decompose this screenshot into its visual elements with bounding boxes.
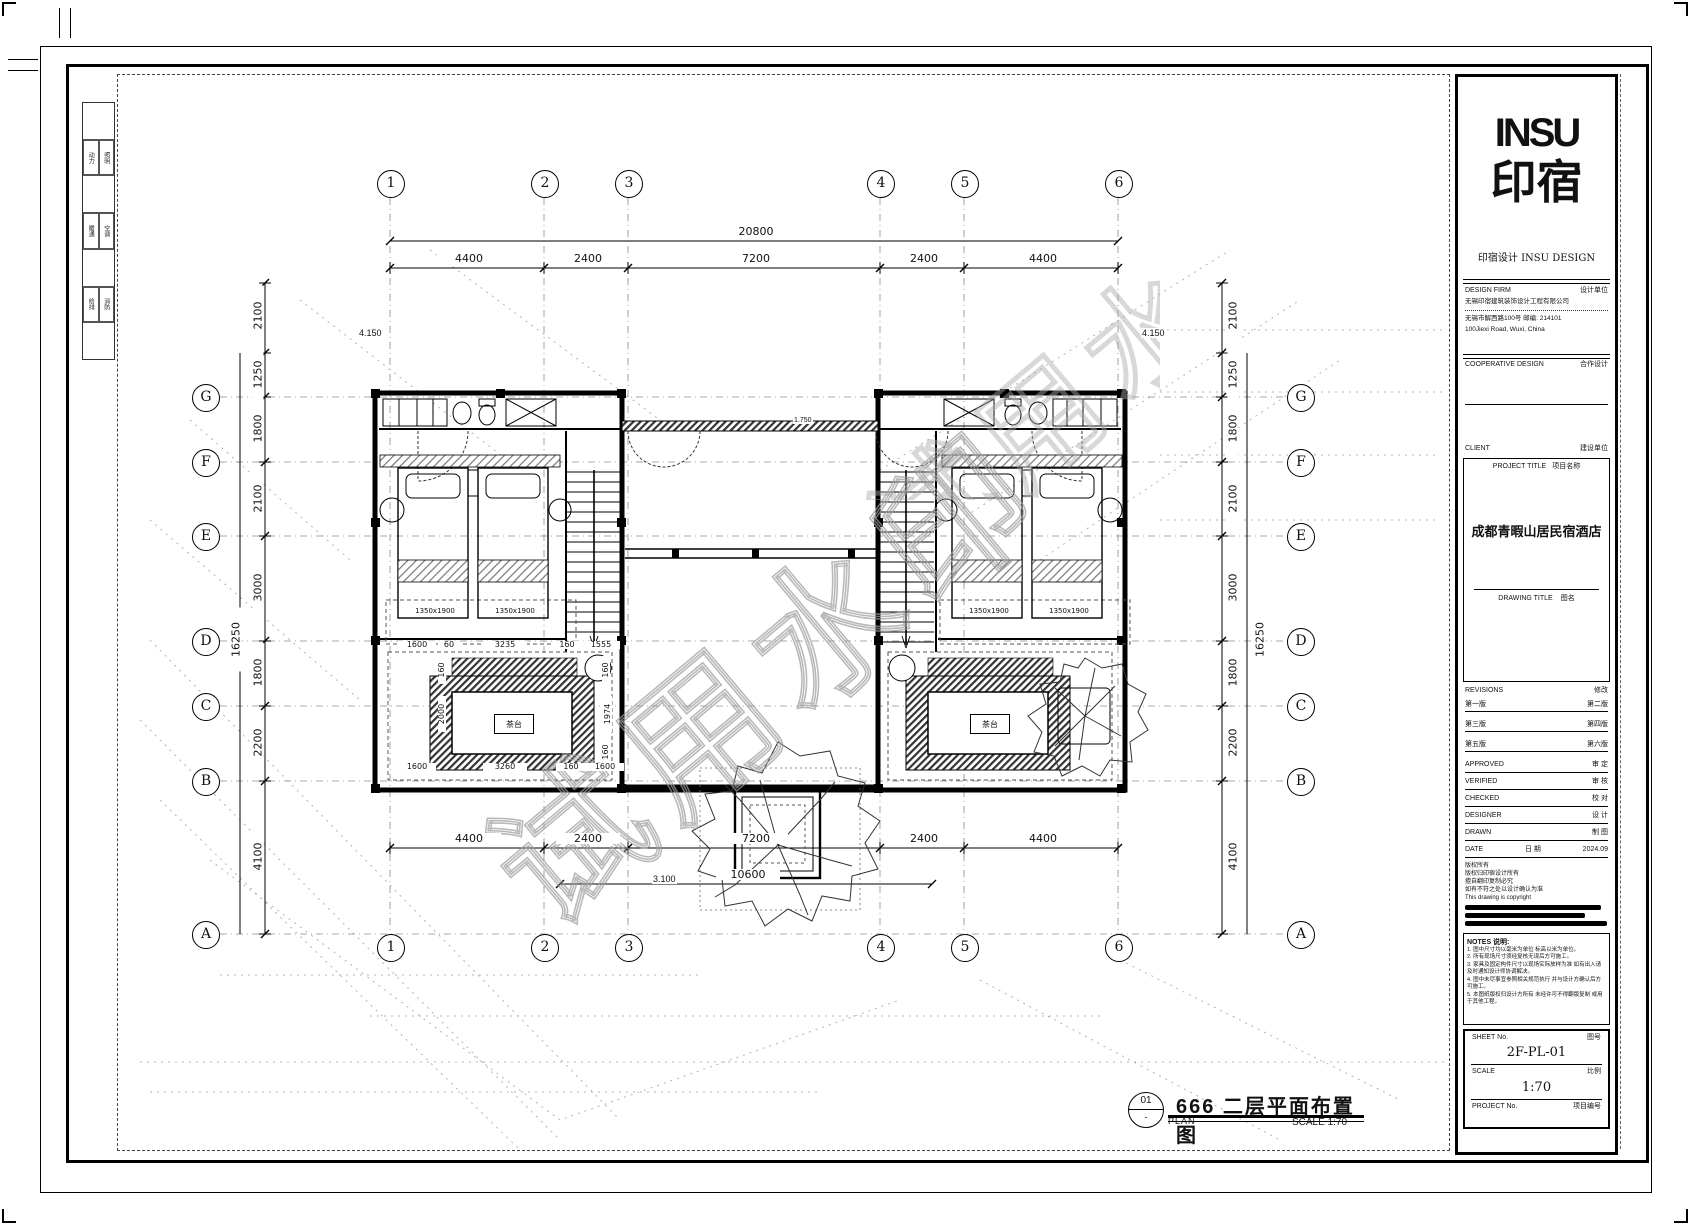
revision-line: 第一版 第二版 (1465, 701, 1608, 712)
bed-size-label: 1350x1900 (400, 608, 470, 615)
grid-bubble-row: E (1287, 523, 1315, 551)
divider (1463, 279, 1610, 284)
grid-bubble-col: 5 (951, 170, 979, 198)
level-marker: 1.750 (793, 417, 813, 424)
dim-label: 2100 (253, 286, 264, 346)
grid-bubble-row: B (1287, 768, 1315, 796)
sign-cn: 设 计 (1592, 812, 1608, 820)
dim-label: 1250 (253, 345, 264, 405)
watermark-fragment: 试用水印 (860, 240, 1160, 500)
dim-label: 2000 (438, 696, 446, 732)
rev-cell: 第六版 (1587, 741, 1608, 749)
grid-bubble-col: 1 (377, 934, 405, 962)
dim-label: 1800 (1228, 643, 1239, 703)
revisions-row: REVISIONS 修改 (1465, 687, 1608, 695)
drawing-title-cn: 图名 (1561, 595, 1575, 603)
copyright-line: 版权所有 (1465, 863, 1489, 870)
grid-bubble-row: D (1287, 628, 1315, 656)
dim-label: 7200 (724, 833, 788, 844)
sign-en: DRAWN (1465, 829, 1491, 837)
coop-row: COOPERATIVE DESIGN 合作设计 (1465, 361, 1608, 369)
grid-bubble-col: 4 (867, 934, 895, 962)
grid-bubble-row: A (1287, 921, 1315, 949)
sign-en: APPROVED (1465, 761, 1504, 769)
dim-label: 3235 (483, 641, 527, 649)
sign-cn: 审 定 (1592, 761, 1608, 769)
tea-table-label: 茶台 (494, 714, 534, 734)
title-block: INSU 印宿 印宿设计 INSU DESIGN DESIGN FIRM 设计单… (1455, 74, 1618, 1155)
notes-title: NOTES 说明: (1467, 937, 1606, 947)
copyright-line: 擅自翻印复制必究 (1465, 879, 1513, 886)
grid-bubble-col: 3 (615, 170, 643, 198)
dim-label: 1555 (582, 641, 620, 649)
grid-bubble-col: 6 (1105, 170, 1133, 198)
date-value: 2024.09 (1583, 846, 1608, 854)
coop-cn: 合作设计 (1580, 361, 1608, 369)
dim-label: 1800 (253, 399, 264, 459)
dim-label: 1600 (398, 763, 436, 771)
date-cn: 日 期 (1525, 846, 1541, 854)
dim-label: 2400 (556, 253, 620, 264)
revisions-cn: 修改 (1594, 687, 1608, 695)
dim-label: 160 (438, 656, 446, 684)
grid-bubble-col: 1 (377, 170, 405, 198)
sign-row: CHECKED 校 对 (1465, 795, 1608, 807)
sign-cn: 制 图 (1592, 829, 1608, 837)
grid-bubble-row: B (192, 768, 220, 796)
dim-label: 4400 (437, 253, 501, 264)
firm-name-text: 无锡印宿建筑装饰设计工程有限公司 (1465, 298, 1569, 305)
date-row: DATE 日 期 2024.09 (1465, 846, 1608, 858)
sheet-number: 2F-PL-01 (1465, 1045, 1608, 1060)
dim-label: 2100 (1228, 469, 1239, 529)
dim-label: 16250 (1255, 608, 1266, 672)
firm-name: 无锡印宿建筑装饰设计工程有限公司 (1465, 298, 1608, 305)
bed-size-label: 1350x1900 (480, 608, 550, 615)
grid-bubble-col: 2 (531, 170, 559, 198)
project-no-en: PROJECT No. (1472, 1103, 1517, 1111)
dim-label: 4400 (1011, 833, 1075, 844)
revision-line: 第五版 第六版 (1465, 741, 1608, 752)
rev-cell: 第三版 (1465, 721, 1486, 729)
dim-label: 1600 (398, 641, 436, 649)
grid-bubble-row: C (192, 693, 220, 721)
divider (1463, 354, 1610, 359)
copyright-line: 如有不符之处以设计确认为准 (1465, 887, 1543, 894)
dim-label: 4100 (1228, 827, 1239, 887)
dim-label: 2200 (1228, 713, 1239, 773)
client-en: CLIENT (1465, 445, 1490, 453)
client-cn: 建设单位 (1580, 445, 1608, 453)
design-firm-row: DESIGN FIRM 设计单位 (1465, 287, 1608, 295)
scale-cn: 比例 (1587, 1068, 1601, 1076)
redacted-text (1465, 913, 1585, 918)
dim-label: 2400 (556, 833, 620, 844)
project-title-cn: 项目名称 (1552, 463, 1580, 471)
bed-size-label: 1350x1900 (1034, 608, 1104, 615)
grid-bubble-row: F (192, 449, 220, 477)
dim-label: 160 (556, 763, 586, 771)
scale-value: 1:70 (1465, 1080, 1608, 1095)
sign-en: DESIGNER (1465, 812, 1502, 820)
dim-label: 160 (602, 656, 610, 684)
dim-label: 3000 (253, 558, 264, 618)
sign-cn: 校 对 (1592, 795, 1608, 803)
client-row: CLIENT 建设单位 (1465, 445, 1608, 453)
dim-label: 1800 (1228, 399, 1239, 459)
level-marker: 4.150 (358, 328, 383, 338)
logo-insu-cn: 印宿 (1458, 157, 1615, 208)
address-en: 100Jiexi Road, Wuxi, China (1465, 326, 1545, 333)
grid-bubble-col: 4 (867, 170, 895, 198)
sign-row: DESIGNER 设 计 (1465, 812, 1608, 824)
logo-insu: INSU (1458, 113, 1615, 153)
brand-line: 印宿设计 INSU DESIGN (1462, 249, 1611, 264)
dim-label: 2400 (892, 253, 956, 264)
coop-en: COOPERATIVE DESIGN (1465, 361, 1544, 369)
dim-label: 2400 (892, 833, 956, 844)
bed-size-label: 1350x1900 (954, 608, 1024, 615)
address-cn: 无锡市解西路100号 邮编: 214101 (1465, 315, 1561, 322)
dim-label: 4400 (437, 833, 501, 844)
dim-label: 2100 (1228, 286, 1239, 346)
level-marker: 4.150 (1141, 328, 1166, 338)
drawing-sheet: 动力 照明 暖通 空调 给排 消防 (0, 0, 1689, 1224)
dim-label: 4400 (1011, 253, 1075, 264)
dim-label: 16250 (231, 608, 242, 672)
copyright-line: 版权归印宿设计所有 (1465, 871, 1519, 878)
grid-bubble-row: D (192, 628, 220, 656)
dim-label: 3000 (1228, 558, 1239, 618)
grid-bubble-row: G (192, 384, 220, 412)
note-line: 2. 所有现场尺寸须经复核无误后方可施工。 (1467, 954, 1606, 961)
grid-bubble-row: E (192, 523, 220, 551)
sign-row: APPROVED 审 定 (1465, 761, 1608, 773)
tea-table-label: 茶台 (970, 714, 1010, 734)
sign-row: VERIFIED 审 核 (1465, 778, 1608, 790)
detail-number-sub: - (1129, 1110, 1163, 1124)
rev-cell: 第二版 (1587, 701, 1608, 709)
sign-en: VERIFIED (1465, 778, 1497, 786)
project-title-en: PROJECT TITLE (1493, 463, 1546, 471)
sign-row: DRAWN 制 图 (1465, 829, 1608, 841)
date-en: DATE (1465, 846, 1483, 854)
dim-label: 160 (552, 641, 582, 649)
rev-cell: 第一版 (1465, 701, 1486, 709)
divider (1465, 404, 1608, 405)
redacted-text (1465, 905, 1601, 910)
level-marker: 3.100 (652, 874, 677, 884)
scale-en: SCALE (1472, 1068, 1495, 1076)
project-no-cn: 项目编号 (1573, 1103, 1601, 1111)
project-title-box: PROJECT TITLE 项目名称 成都青暇山居民宿酒店 DRAWING TI… (1463, 458, 1610, 682)
grid-bubble-row: F (1287, 449, 1315, 477)
detail-number-bubble: 01 - (1128, 1092, 1164, 1128)
grid-bubble-col: 6 (1105, 934, 1133, 962)
grid-bubble-row: C (1287, 693, 1315, 721)
redacted-text (1465, 921, 1607, 926)
dim-label: 7200 (724, 253, 788, 264)
revision-line: 第三版 第四版 (1465, 721, 1608, 732)
sheet-en: SHEET No. (1472, 1034, 1508, 1042)
rev-cell: 第四版 (1587, 721, 1608, 729)
divider (1474, 589, 1599, 590)
note-line: 4. 图中未尽事宜参照相关规范执行 并与设计方确认后方可施工。 (1467, 977, 1606, 992)
scale-caption: SCALE 1:70 (1292, 1117, 1347, 1128)
dim-label: 1250 (1228, 345, 1239, 405)
grid-bubble-row: A (192, 921, 220, 949)
note-line: 5. 本图纸版权归设计方所有 未经许可不得翻版复制 或用于其他工程。 (1467, 992, 1606, 1007)
note-line: 3. 家具及固定构件尺寸以现场实际放样为准 如有出入请及时通知设计师协调解决。 (1467, 962, 1606, 977)
drawing-title-bar: 01 - PLAN 666 二层平面布置图 SCALE 1:70 (1128, 1090, 1368, 1132)
dim-label: 20800 (718, 226, 794, 237)
dim-label: 10600 (716, 869, 780, 880)
dim-label: 2200 (253, 713, 264, 773)
dim-label: 4100 (253, 827, 264, 887)
sign-en: CHECKED (1465, 795, 1499, 803)
sheet-cn: 图号 (1587, 1034, 1601, 1042)
detail-number: 01 (1129, 1093, 1163, 1110)
dim-label: 2100 (253, 469, 264, 529)
dim-label: 1800 (253, 643, 264, 703)
sign-cn: 审 核 (1592, 778, 1608, 786)
dim-label: 1974 (604, 696, 612, 732)
rev-cell: 第五版 (1465, 741, 1486, 749)
copyright-en: This drawing is copyright (1465, 895, 1531, 902)
revisions-en: REVISIONS (1465, 687, 1503, 695)
sheet-box: SHEET No. 图号 2F-PL-01 SCALE 比例 1:70 PROJ… (1463, 1029, 1610, 1129)
notes-box: NOTES 说明: 1. 图中尺寸均以毫米为单位 标高以米为单位。 2. 所有现… (1463, 933, 1610, 1025)
grid-bubble-col: 5 (951, 934, 979, 962)
design-firm-cn: 设计单位 (1580, 287, 1608, 295)
grid-bubble-col: 3 (615, 934, 643, 962)
grid-bubble-row: G (1287, 384, 1315, 412)
project-name: 成都青暇山居民宿酒店 (1468, 521, 1605, 540)
drawing-title-en: DRAWING TITLE (1498, 595, 1552, 603)
dim-label: 1600 (586, 763, 624, 771)
dim-label: 60 (438, 641, 460, 649)
design-firm-en: DESIGN FIRM (1465, 287, 1511, 295)
grid-bubble-col: 2 (531, 934, 559, 962)
dim-label: 3260 (483, 763, 527, 771)
